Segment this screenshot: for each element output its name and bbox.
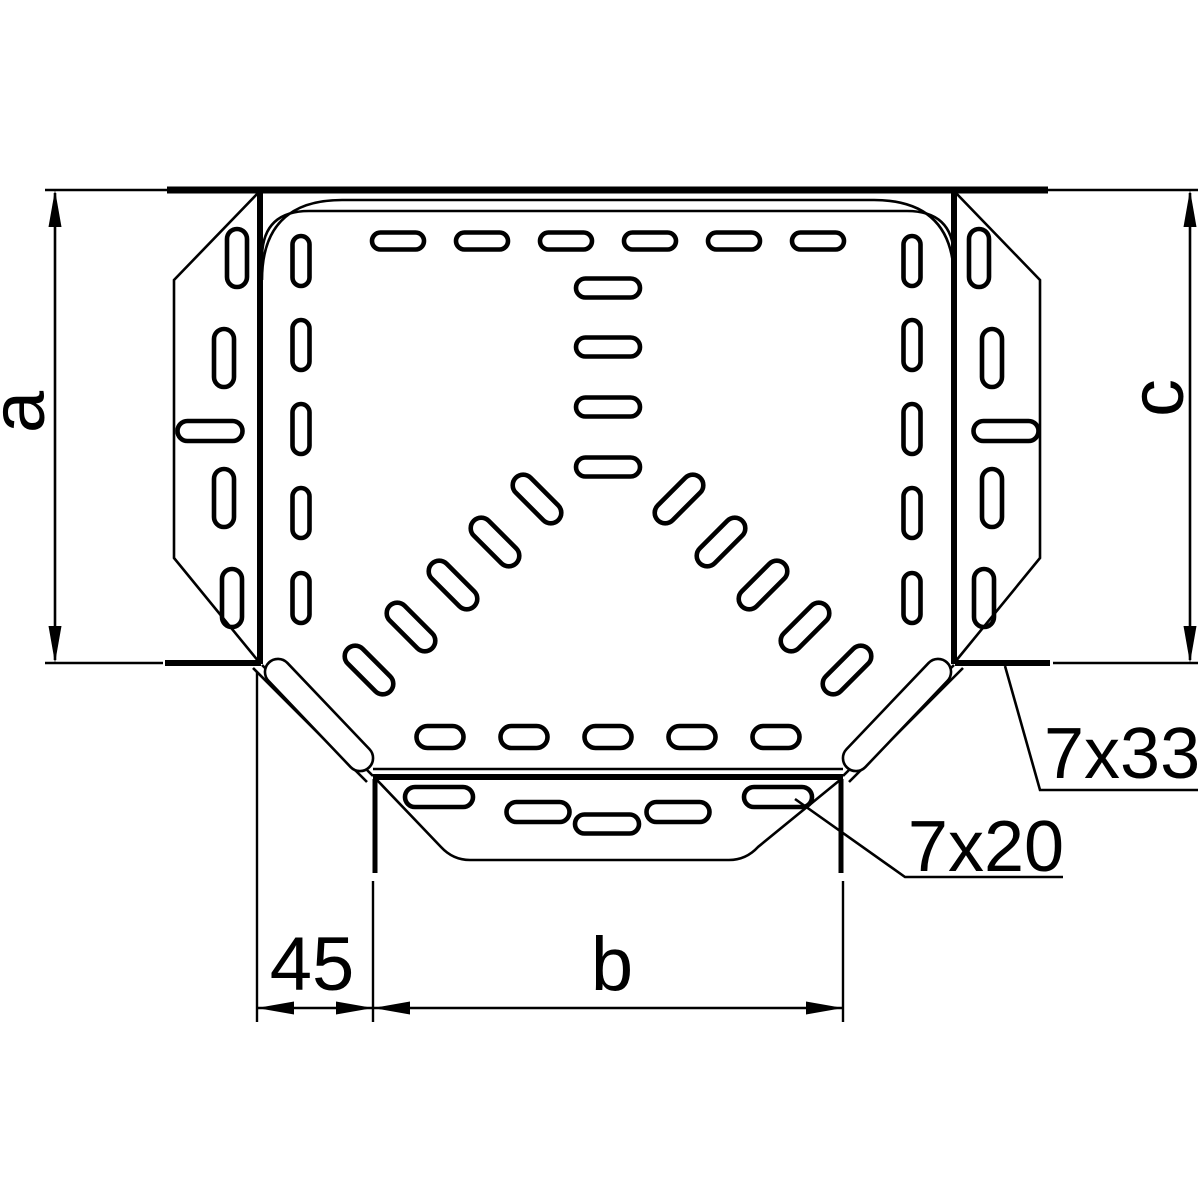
dimension-label-c: c: [1115, 379, 1200, 417]
drawing-background: [0, 0, 1200, 1200]
dimension-label-45: 45: [270, 922, 355, 1007]
dimension-label-a: a: [0, 390, 61, 433]
dimension-label-b: b: [591, 922, 633, 1007]
drawing-canvas: a c 45 b 7x33 7x20: [0, 0, 1200, 1200]
callout-label-7x33: 7x33: [1044, 714, 1200, 794]
cable-tray-tee-drawing: a c 45 b 7x33 7x20: [0, 0, 1200, 1200]
callout-label-7x20: 7x20: [908, 807, 1064, 887]
